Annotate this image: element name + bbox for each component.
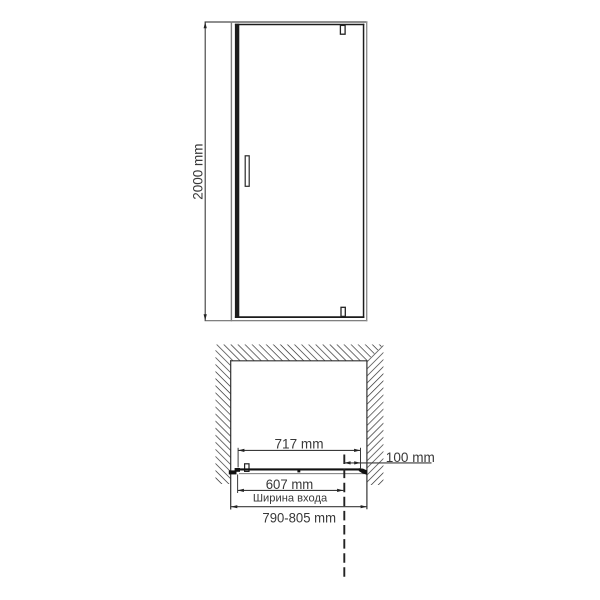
svg-text:717 mm: 717 mm: [274, 436, 323, 451]
svg-text:790-805 mm: 790-805 mm: [262, 510, 336, 526]
svg-text:607 mm: 607 mm: [266, 477, 314, 492]
svg-text:Ширина входа: Ширина входа: [253, 492, 328, 504]
svg-text:100 mm: 100 mm: [386, 450, 435, 465]
svg-text:2000 mm: 2000 mm: [191, 143, 206, 199]
